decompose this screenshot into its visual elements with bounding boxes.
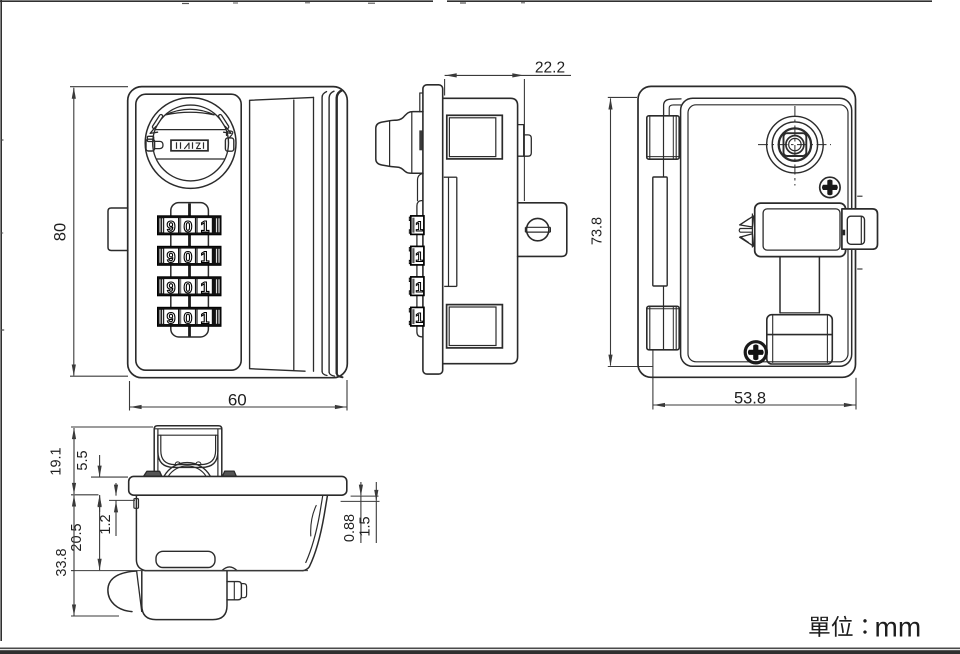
svg-text:1.5: 1.5 bbox=[358, 516, 374, 536]
svg-text:1: 1 bbox=[415, 218, 423, 234]
svg-text:73.8: 73.8 bbox=[590, 217, 606, 245]
svg-text:60: 60 bbox=[228, 390, 247, 409]
svg-text:0: 0 bbox=[184, 311, 193, 328]
svg-text:9: 9 bbox=[167, 311, 176, 328]
svg-text:1: 1 bbox=[200, 250, 209, 267]
svg-text:1: 1 bbox=[415, 279, 423, 295]
svg-text:9: 9 bbox=[167, 280, 176, 297]
svg-text:33.8: 33.8 bbox=[54, 548, 70, 576]
svg-text:0.88: 0.88 bbox=[342, 514, 358, 542]
svg-text:22.2: 22.2 bbox=[535, 60, 565, 77]
svg-text:9: 9 bbox=[167, 250, 176, 267]
svg-text:1: 1 bbox=[415, 310, 423, 326]
svg-text:1: 1 bbox=[200, 311, 209, 328]
svg-text:1: 1 bbox=[415, 249, 423, 265]
svg-text:80: 80 bbox=[52, 223, 70, 241]
svg-text:20.5: 20.5 bbox=[69, 523, 85, 551]
svg-text:53.8: 53.8 bbox=[734, 390, 766, 408]
svg-text:9: 9 bbox=[167, 219, 176, 236]
svg-text:0: 0 bbox=[184, 219, 193, 236]
svg-text:1.2: 1.2 bbox=[98, 514, 114, 534]
svg-text:19.1: 19.1 bbox=[49, 447, 65, 475]
svg-text:mm: mm bbox=[875, 612, 922, 643]
svg-text:1: 1 bbox=[200, 280, 209, 297]
svg-text:0: 0 bbox=[184, 280, 193, 297]
svg-text:5.5: 5.5 bbox=[75, 450, 91, 470]
svg-text:1: 1 bbox=[200, 219, 209, 236]
svg-text:0: 0 bbox=[184, 250, 193, 267]
